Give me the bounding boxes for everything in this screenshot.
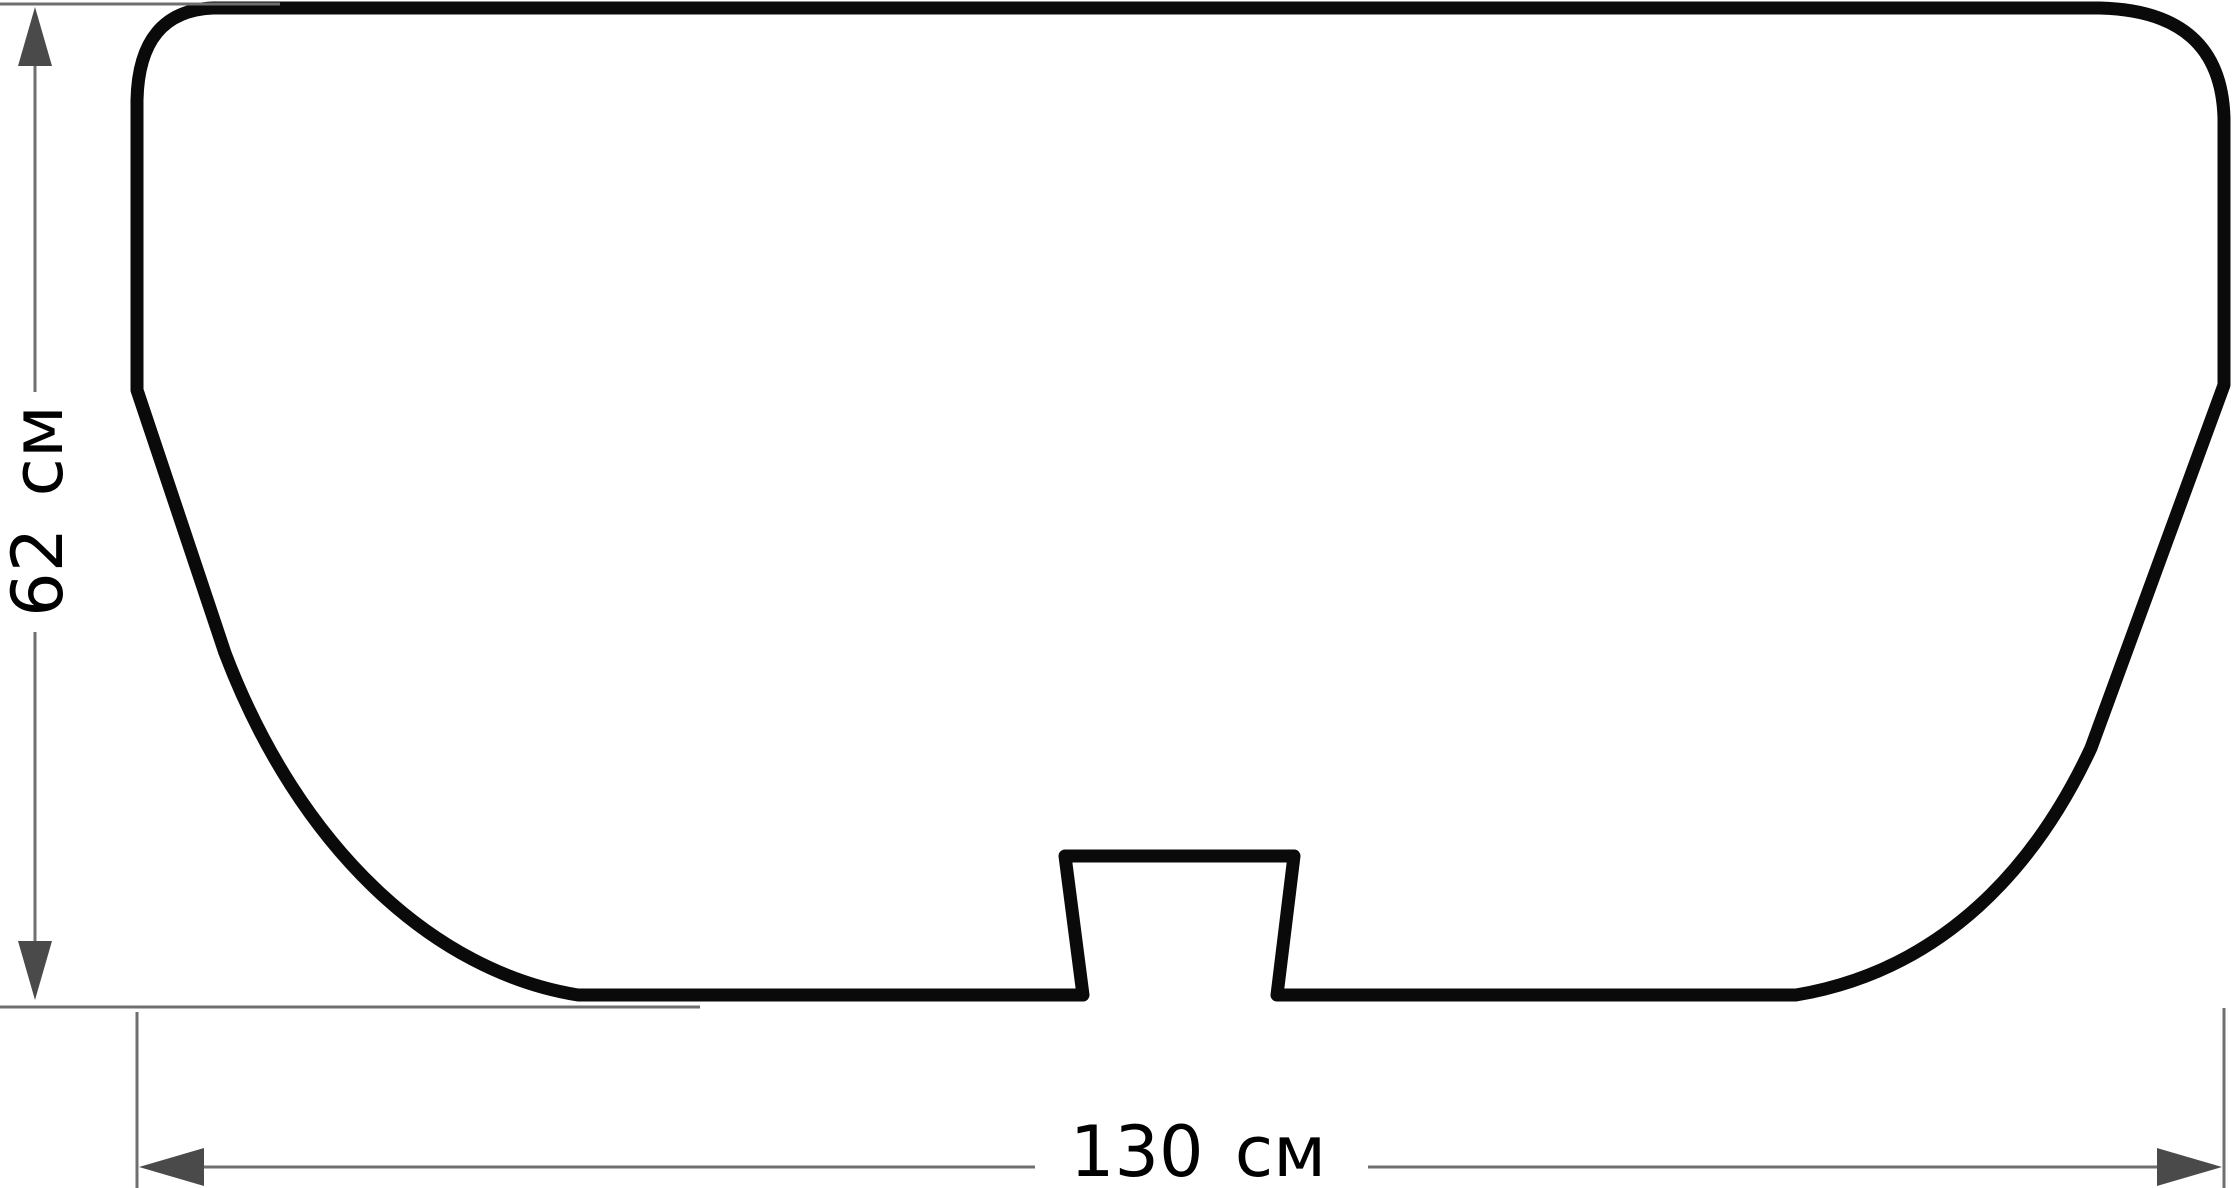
- basin-outline-group: [137, 8, 2224, 995]
- down-arrowhead-icon: [18, 941, 52, 1000]
- width-dimension-label: 130 см: [1070, 1111, 1326, 1188]
- dimension-drawing: 62 см 130 см: [0, 0, 2233, 1188]
- basin-outline: [137, 8, 2224, 995]
- height-dimension-label: 62 см: [0, 405, 79, 617]
- left-arrowhead-icon: [139, 1148, 204, 1186]
- drawing-canvas: 62 см 130 см: [0, 0, 2233, 1188]
- right-arrowhead-icon: [2157, 1148, 2222, 1186]
- up-arrowhead-icon: [18, 7, 52, 66]
- width-dimension: 130 см: [137, 1008, 2224, 1188]
